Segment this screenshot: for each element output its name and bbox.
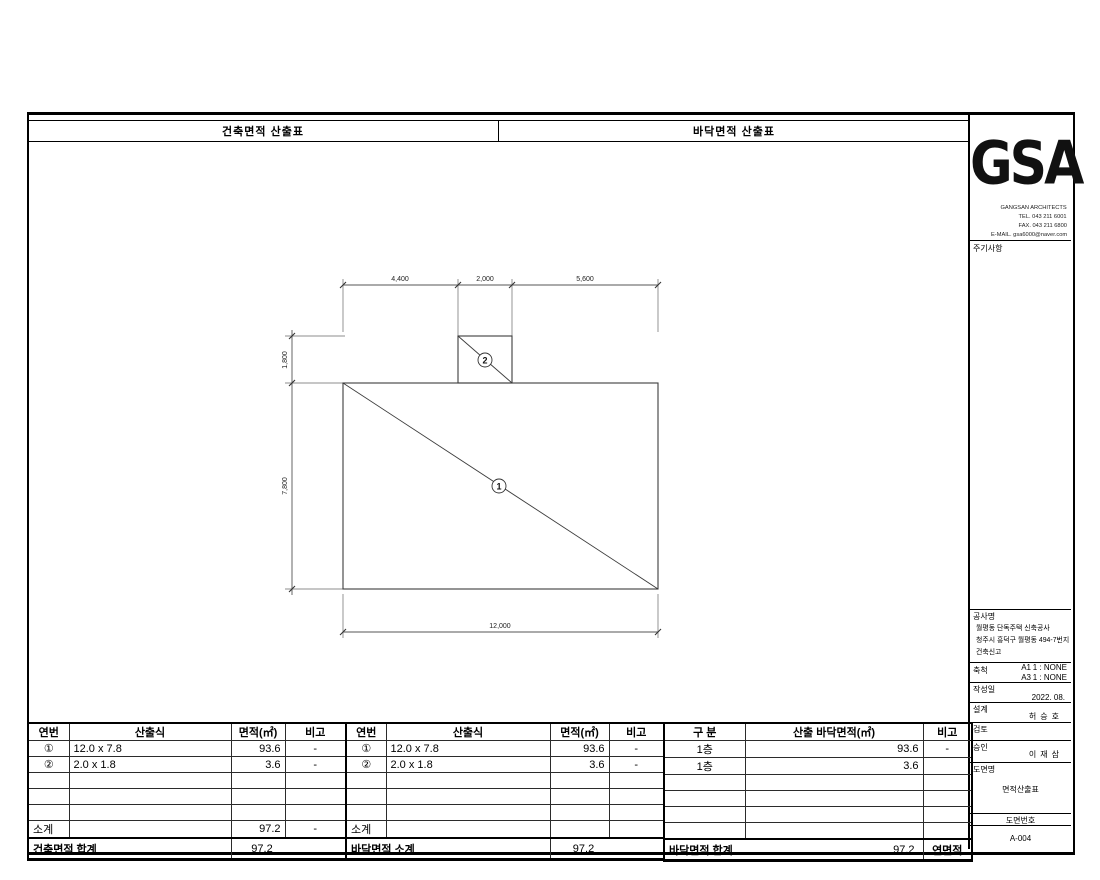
- col-header-area: 면적(㎡): [550, 723, 609, 741]
- drawing-title-value: 면적산출표: [970, 784, 1071, 795]
- subtotal-label: 소계: [28, 821, 69, 839]
- divider-line: [970, 740, 1071, 741]
- row-class: 1층: [664, 758, 745, 775]
- row-no: ①: [28, 741, 69, 757]
- total-row: 건축면적 합계 97.2: [28, 838, 346, 860]
- row-area: 93.6: [550, 741, 609, 757]
- scale-label: 축척: [973, 665, 988, 676]
- floor-area-table: 연번 산출식 면적(㎡) 비고 ① 12.0 x 7.8 93.6 - ② 2.…: [345, 722, 665, 861]
- date-value: 2022. 08.: [1032, 693, 1065, 702]
- table-header-row: 연번 산출식 면적(㎡) 비고: [28, 723, 346, 741]
- divider-line: [970, 813, 1071, 814]
- total-row: 바닥면적 소계 97.2: [346, 838, 664, 860]
- building-area-table: 연번 산출식 면적(㎡) 비고 ① 12.0 x 7.8 93.6 - ② 2.…: [27, 722, 347, 861]
- firm-email: E-MAIL. gsa6000@naver.com: [991, 232, 1067, 238]
- divider-line: [970, 702, 1071, 703]
- top-dimension-chain: 4,400 2,000 5,600: [340, 276, 661, 336]
- row-area: 3.6: [231, 757, 285, 773]
- col-header-no: 연번: [346, 723, 386, 741]
- dim-left-1: 1,800: [282, 351, 289, 369]
- scale-a1-code: A1: [1021, 663, 1031, 672]
- total-area: 97.2: [555, 843, 613, 855]
- dim-top-1: 4,400: [391, 276, 409, 283]
- subtotal-row: 소계 97.2 -: [28, 821, 346, 839]
- col-header-class: 구 분: [664, 723, 745, 741]
- drawing-number-value: A-004: [970, 834, 1071, 843]
- subtotal-area: 97.2: [231, 821, 285, 839]
- row-area: 93.6: [231, 741, 285, 757]
- row-no: ②: [346, 757, 386, 773]
- row-formula: 12.0 x 7.8: [386, 741, 550, 757]
- firm-fax: FAX. 043 211 6800: [1019, 223, 1067, 229]
- floor-summary-table: 구 분 산출 바닥면적(㎡) 비고 1층 93.6 - 1층 3.6 바닥면적 …: [663, 722, 973, 862]
- approver-name: 이재삼: [1029, 749, 1063, 760]
- row-remark: -: [923, 741, 972, 758]
- divider-line: [970, 682, 1071, 683]
- project-label: 공사명: [973, 611, 995, 622]
- drawing-sheet: 건축면적 산출표 바닥면적 산출표 4,400 2,000 5,600: [0, 0, 1100, 880]
- bottom-dimension: 12,000: [340, 594, 661, 638]
- col-header-formula: 산출식: [386, 723, 550, 741]
- row-remark: -: [285, 757, 346, 773]
- row-class: 1층: [664, 741, 745, 758]
- dim-top-2: 2,000: [476, 276, 494, 283]
- plan-diagram: 4,400 2,000 5,600 1,800 7,800 12,000: [260, 260, 700, 650]
- drawing-title-label: 도면명: [973, 764, 995, 775]
- row-formula: 2.0 x 1.8: [69, 757, 231, 773]
- dim-left-2: 7,800: [282, 477, 289, 495]
- empty-row: [664, 775, 972, 791]
- project-name: 월평동 단독주택 신축공사: [976, 622, 1050, 632]
- divider-line: [970, 722, 1071, 723]
- left-dimension-chain: 1,800 7,800: [282, 330, 345, 595]
- empty-row: [28, 773, 346, 789]
- total-label: 바닥면적 합계: [669, 842, 733, 858]
- row-remark: -: [609, 757, 664, 773]
- total-area: 97.2: [893, 844, 914, 856]
- row-no: ①: [346, 741, 386, 757]
- empty-row: [346, 789, 664, 805]
- col-header-remark: 비고: [923, 723, 972, 741]
- notes-label: 주기사항: [973, 243, 1002, 254]
- row-area: 3.6: [550, 757, 609, 773]
- floor-area-table-title: 바닥면적 산출표: [499, 121, 969, 141]
- subtotal-label: 소계: [346, 821, 386, 839]
- col-header-remark: 비고: [285, 723, 346, 741]
- sheet-header-band: 건축면적 산출표 바닥면적 산출표: [27, 120, 970, 142]
- review-label: 검토: [973, 724, 988, 735]
- table-row: ② 2.0 x 1.8 3.6 -: [28, 757, 346, 773]
- main-mark-number: 1: [496, 482, 501, 492]
- col-header-no: 연번: [28, 723, 69, 741]
- total-label: 건축면적 합계: [28, 838, 231, 860]
- col-header-area: 면적(㎡): [231, 723, 285, 741]
- project-permit-type: 건축신고: [976, 646, 1001, 656]
- col-header-formula: 산출식: [69, 723, 231, 741]
- table-row: 1층 3.6: [664, 758, 972, 775]
- empty-row: [28, 805, 346, 821]
- total-remark: 연면적: [923, 839, 972, 861]
- firm-name: GANGSAN ARCHITECTS: [1001, 205, 1067, 211]
- dim-bottom: 12,000: [489, 623, 511, 630]
- table-row: ① 12.0 x 7.8 93.6 -: [28, 741, 346, 757]
- scale-a3-code: A3: [1021, 673, 1031, 682]
- col-header-area: 산출 바닥면적(㎡): [745, 723, 923, 741]
- design-label: 설계: [973, 704, 988, 715]
- row-remark: [923, 758, 972, 775]
- empty-row: [664, 807, 972, 823]
- table-header-row: 구 분 산출 바닥면적(㎡) 비고: [664, 723, 972, 741]
- gsa-logo: GSA: [970, 130, 1071, 199]
- approval-label: 승인: [973, 742, 988, 753]
- title-block: GSA GANGSAN ARCHITECTS TEL. 043 211 6001…: [970, 112, 1071, 849]
- row-remark: -: [285, 741, 346, 757]
- total-label: 바닥면적 소계: [346, 838, 550, 860]
- designer-name: 허승호: [1029, 711, 1063, 722]
- project-address: 청주시 흥덕구 월평동 494-7번지: [976, 634, 1069, 644]
- row-formula: 12.0 x 7.8: [69, 741, 231, 757]
- date-label: 작성일: [973, 684, 995, 695]
- subtotal-row: 소계: [346, 821, 664, 839]
- divider-line: [970, 762, 1071, 763]
- dim-top-3: 5,600: [576, 276, 594, 283]
- subtotal-remark: -: [285, 821, 346, 839]
- divider-line: [970, 609, 1071, 610]
- empty-row: [664, 791, 972, 807]
- scale-a3-value: 1 : NONE: [1033, 673, 1067, 682]
- total-row: 바닥면적 합계 97.2 연면적: [664, 839, 972, 861]
- firm-tel: TEL. 043 211 6001: [1019, 214, 1067, 220]
- empty-row: [664, 823, 972, 840]
- empty-row: [28, 789, 346, 805]
- empty-row: [346, 773, 664, 789]
- scale-a1-value: 1 : NONE: [1033, 663, 1067, 672]
- row-area: 3.6: [745, 758, 923, 775]
- row-area: 93.6: [745, 741, 923, 758]
- divider-line: [970, 825, 1071, 826]
- total-area: 97.2: [236, 843, 289, 855]
- main-outline: 1: [343, 383, 658, 589]
- row-no: ②: [28, 757, 69, 773]
- table-row: ② 2.0 x 1.8 3.6 -: [346, 757, 664, 773]
- building-area-table-title: 건축면적 산출표: [28, 121, 499, 141]
- divider-line: [970, 240, 1071, 241]
- row-formula: 2.0 x 1.8: [386, 757, 550, 773]
- col-header-remark: 비고: [609, 723, 664, 741]
- row-remark: -: [609, 741, 664, 757]
- table-header-row: 연번 산출식 면적(㎡) 비고: [346, 723, 664, 741]
- annex-outline: 2: [458, 336, 512, 383]
- table-row: 1층 93.6 -: [664, 741, 972, 758]
- empty-row: [346, 805, 664, 821]
- table-row: ① 12.0 x 7.8 93.6 -: [346, 741, 664, 757]
- annex-mark-number: 2: [482, 356, 487, 366]
